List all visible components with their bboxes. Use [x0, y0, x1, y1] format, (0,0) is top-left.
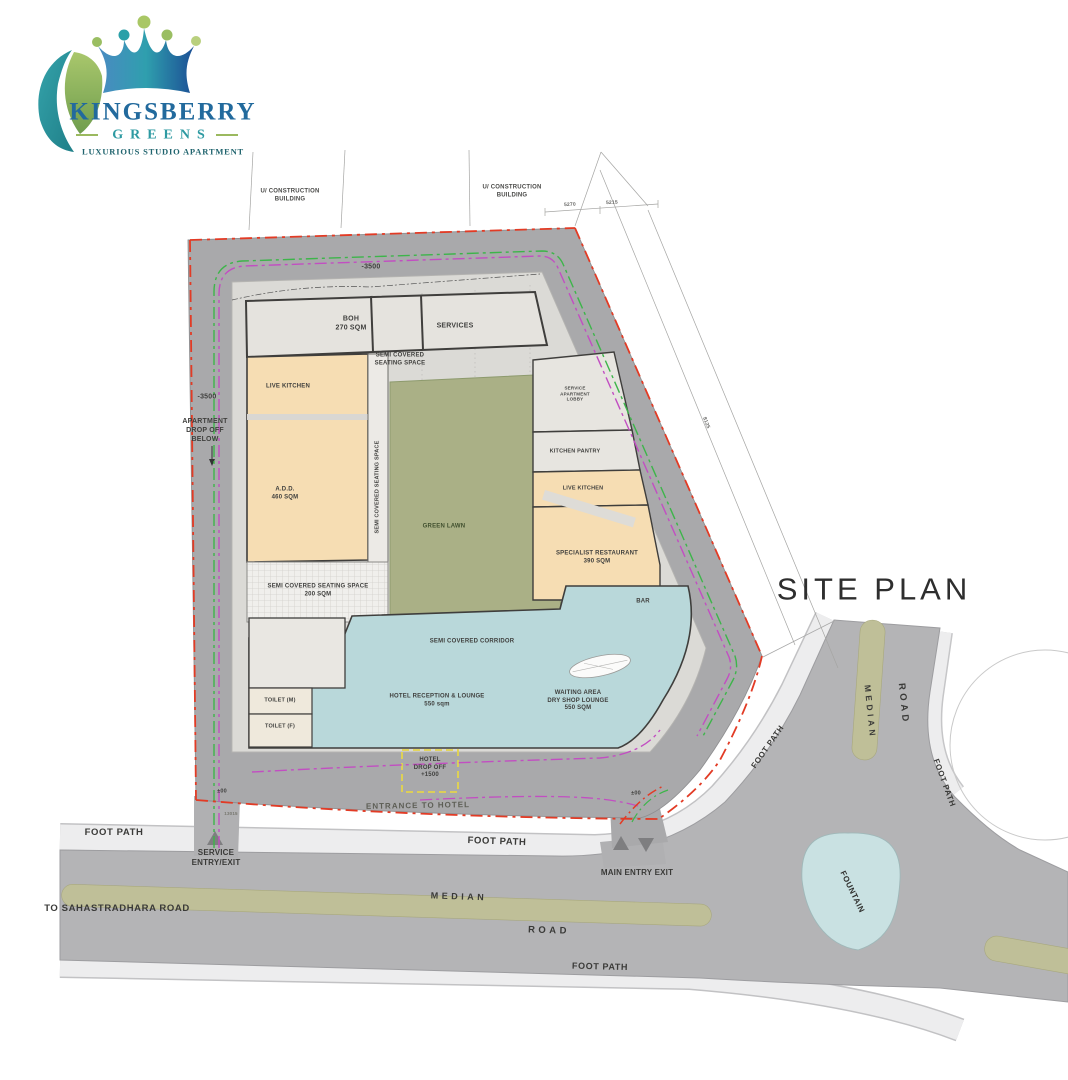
site-plan-page: KINGSBERRY GREENS LUXURIOUS STUDIO APART… [0, 0, 1068, 1080]
service-entry-label: SERVICE ENTRY/EXIT [192, 848, 241, 868]
level-top: -3500 [362, 264, 381, 273]
waiting-area-label: WAITING AREA DRY SHOP LOUNGE 550 SQM [547, 690, 608, 713]
logo-dash-left [76, 134, 98, 136]
specialist-restaurant-label: SPECIALIST RESTAURANT 390 SQM [556, 551, 638, 566]
dim-5215: 5215 [606, 200, 618, 207]
semi-covered-seating-top: SEMI COVERED SEATING SPACE [375, 353, 426, 368]
toilet-f-room [249, 714, 312, 747]
green-lawn-label: GREEN LAWN [423, 523, 466, 531]
footpath-bottom-label: FOOT PATH [572, 961, 628, 974]
level-left: -3500 [198, 394, 217, 403]
footpath-left-label: FOOT PATH [85, 827, 144, 839]
entrance-to-hotel-label: ENTRANCE TO HOTEL [366, 800, 470, 812]
logo-tagline: LUXURIOUS STUDIO APARTMENT [82, 147, 244, 158]
site-plan-drawing [0, 0, 1068, 1080]
logo-subname: GREENS [112, 126, 212, 144]
level-zero-left: ±00 [217, 789, 227, 796]
room-add: A.D.D. 460 SQM [272, 487, 299, 502]
level-zero-right: ±00 [631, 791, 641, 798]
room-services: SERVICES [437, 323, 474, 332]
dim-5270: 5270 [564, 202, 576, 209]
toilet-m-label: TOILET (M) [264, 698, 295, 705]
boh-services-block [246, 292, 547, 357]
construction-nw-label: U/ CONSTRUCTION BUILDING [261, 189, 320, 204]
median-bottom-label: MEDIAN [431, 890, 488, 903]
room-boh: BOH 270 SQM [336, 315, 367, 333]
toilet-f-label: TOILET (F) [265, 724, 295, 731]
footpath-center-label: FOOT PATH [467, 835, 526, 849]
service-core [249, 618, 345, 688]
seating-strip-label: SEMI COVERED SEATING SPACE [375, 440, 382, 533]
construction-ne-label: U/ CONSTRUCTION BUILDING [483, 185, 542, 200]
room-live-kitchen-left: LIVE KITCHEN [266, 383, 310, 391]
road-bottom-label: ROAD [528, 924, 570, 937]
logo-dash-right [216, 134, 238, 136]
bar-label: BAR [636, 598, 650, 606]
service-apartment-lobby-label: SERVICE APARTMENT LOBBY [560, 386, 590, 403]
logo-name: KINGSBERRY [69, 96, 256, 127]
live-kitchen-right-label: LIVE KITCHEN [563, 486, 604, 493]
page-title: SITE PLAN [777, 571, 972, 610]
hotel-drop-off-label: HOTEL DROP OFF +1500 [414, 757, 447, 780]
apartment-drop-off-label: APARTMENT DROP OFF BELOW [182, 418, 227, 444]
reception-label: HOTEL RECEPTION & LOUNGE 550 sqm [389, 694, 484, 709]
main-entry-label: MAIN ENTRY EXIT [601, 868, 673, 878]
logo-crown [98, 28, 194, 93]
seating-200-label: SEMI COVERED SEATING SPACE 200 SQM [268, 584, 369, 599]
to-sahastradhara-road-label: TO SAHASTRADHARA ROAD [44, 903, 190, 915]
semi-covered-corridor-label: SEMI COVERED CORRIDOR [430, 638, 515, 646]
kitchen-pantry-label: KITCHEN PANTRY [550, 449, 601, 456]
dim-13015: 13015 [224, 811, 238, 817]
